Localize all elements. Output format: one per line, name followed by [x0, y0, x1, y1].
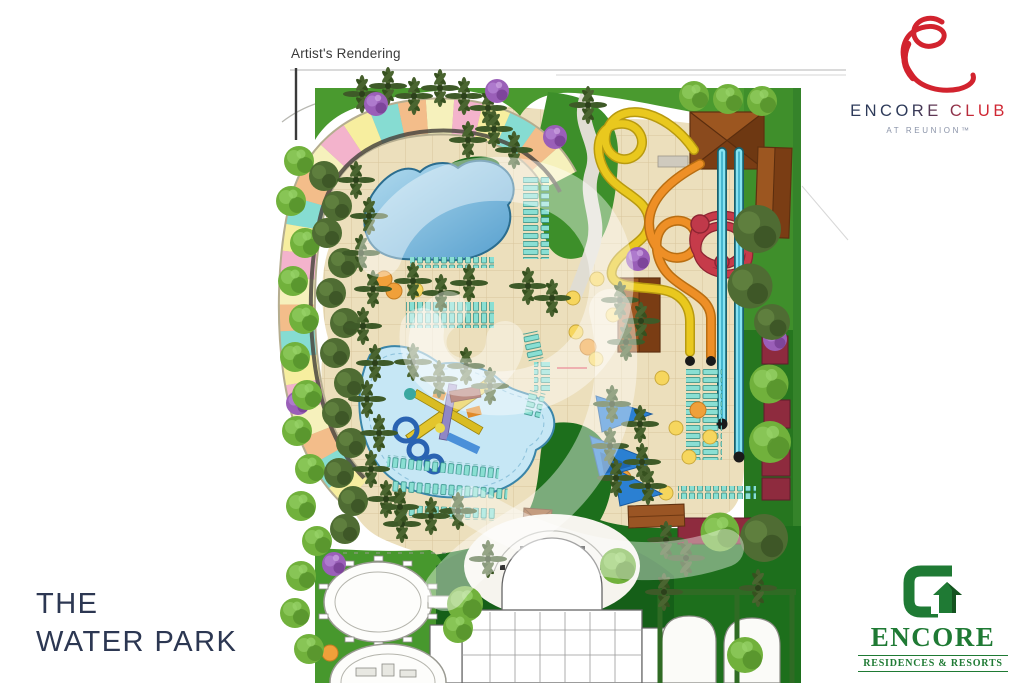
page-title: THE WATER PARK — [36, 585, 237, 661]
pavilion-hut-south — [628, 504, 685, 528]
page-title-line2: WATER PARK — [36, 623, 237, 661]
script-c-ribbon-icon — [882, 12, 977, 100]
encore-resorts-logo: ENCORE RESIDENCES & RESORTS — [845, 563, 1021, 672]
stair-platform — [658, 156, 688, 167]
encore-club-wordmark: ENCORE CLUB — [833, 102, 1024, 121]
water-park-rendering-page: Artist's Rendering THE WATER PARK ENCORE… — [0, 0, 1024, 683]
green-e-house-icon — [900, 563, 966, 621]
artists-rendering-label: Artist's Rendering — [291, 46, 401, 61]
encore-club-logo: ENCORE CLUB AT REUNION™ — [833, 12, 1024, 135]
encore-club-tagline: AT REUNION™ — [833, 126, 1024, 135]
page-title-line1: THE — [36, 585, 237, 623]
encore-resorts-wordmark: ENCORE — [845, 622, 1021, 653]
encore-resorts-tagline: RESIDENCES & RESORTS — [858, 655, 1008, 672]
